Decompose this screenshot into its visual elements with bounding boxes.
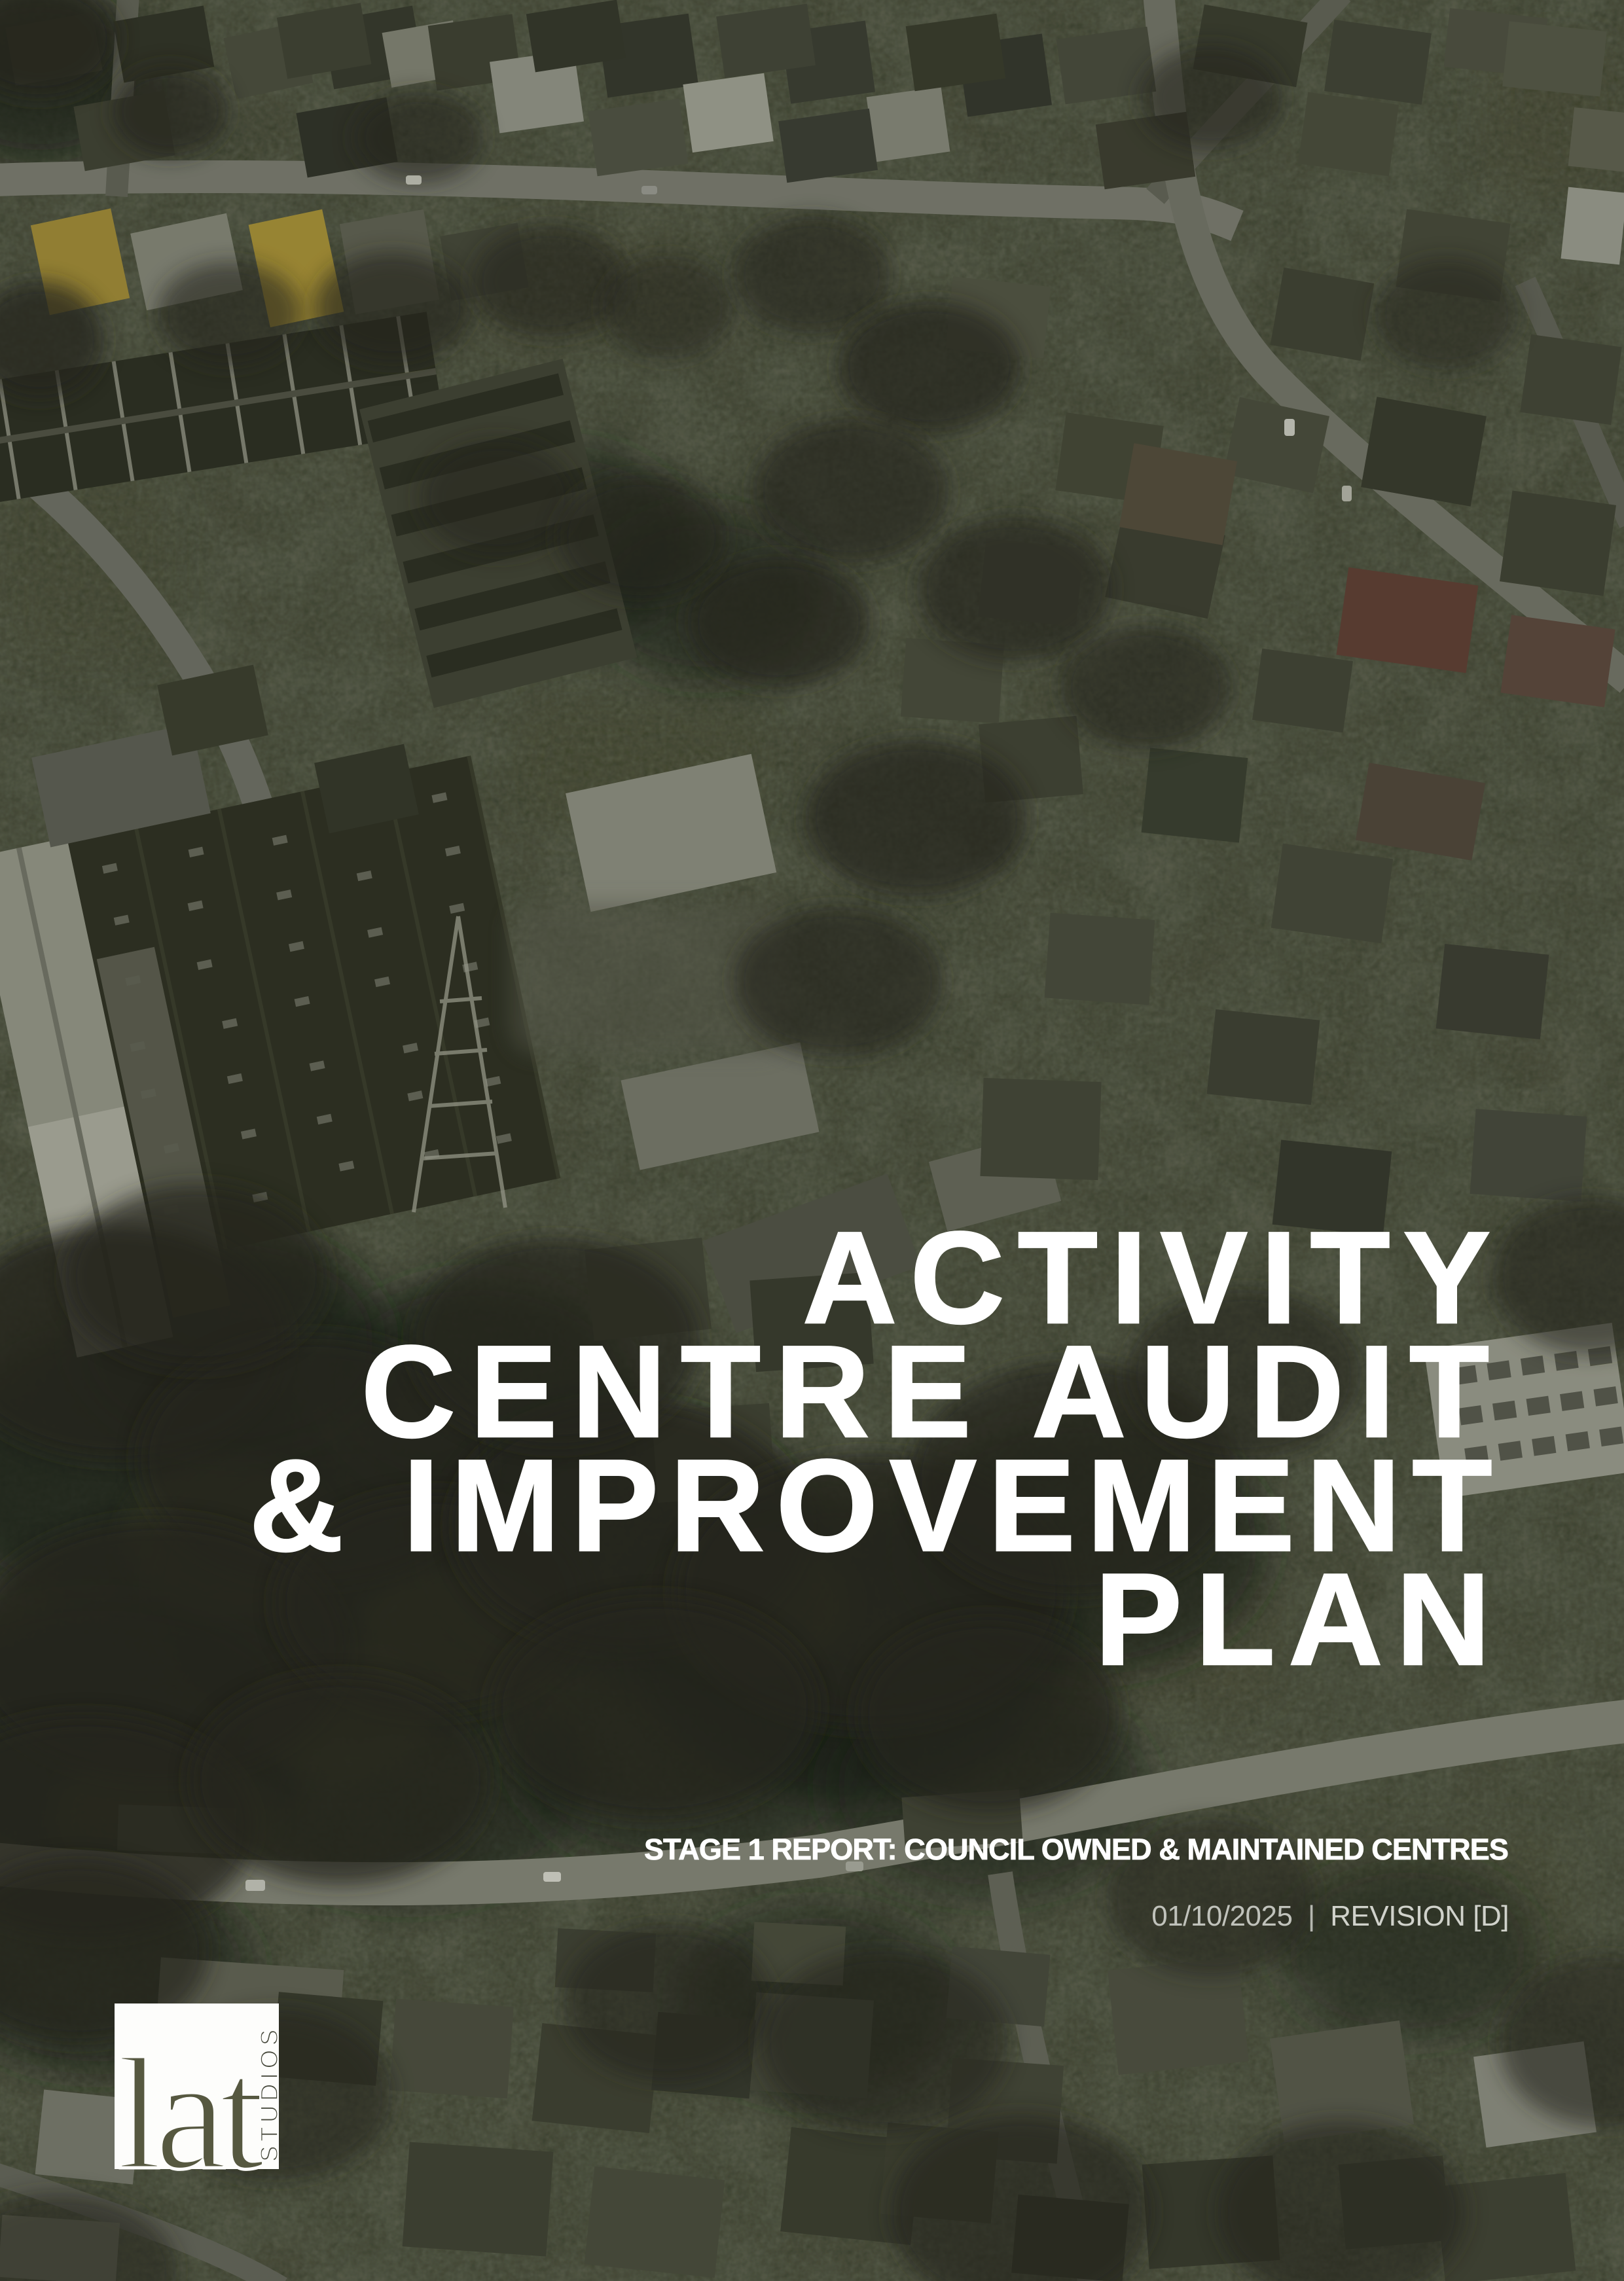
svg-text:PLAN: PLAN bbox=[1095, 1547, 1504, 1693]
svg-text:01/10/2025 | REVISION [D]: 01/10/2025 | REVISION [D] bbox=[1151, 1900, 1509, 1932]
svg-text:STUDIOS: STUDIOS bbox=[256, 2025, 283, 2162]
svg-text:STAGE 1 REPORT: COUNCIL OWNED: STAGE 1 REPORT: COUNCIL OWNED & MAINTAIN… bbox=[644, 1833, 1508, 1866]
svg-text:lat: lat bbox=[117, 2025, 264, 2202]
